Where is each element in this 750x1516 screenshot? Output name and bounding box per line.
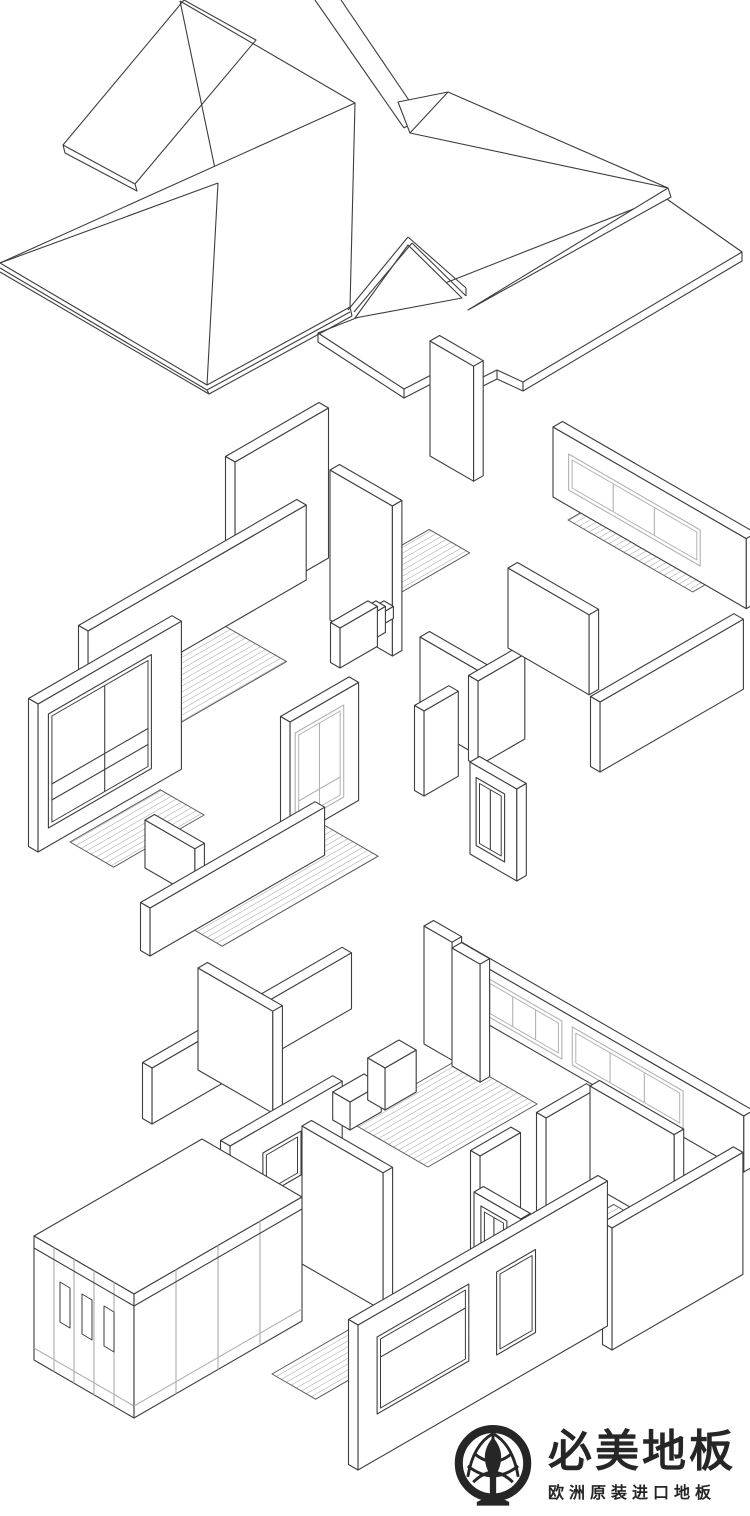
architectural-drawing-page: 必美地板 欧洲原装进口地板 [0, 0, 750, 1516]
brand-logo: 必美地板 欧洲原装进口地板 [448, 1418, 750, 1514]
upper-floor-drawing [29, 336, 750, 957]
axonometric-drawings-canvas [0, 0, 750, 1516]
tree-in-circle-emblem-icon [448, 1420, 538, 1512]
roof-drawing [0, 0, 742, 398]
brand-name: 必美地板 [548, 1429, 736, 1475]
ground-floor-drawing [34, 921, 750, 1471]
logo-text: 必美地板 欧洲原装进口地板 [548, 1429, 736, 1503]
brand-tagline: 欧洲原装进口地板 [548, 1479, 736, 1503]
